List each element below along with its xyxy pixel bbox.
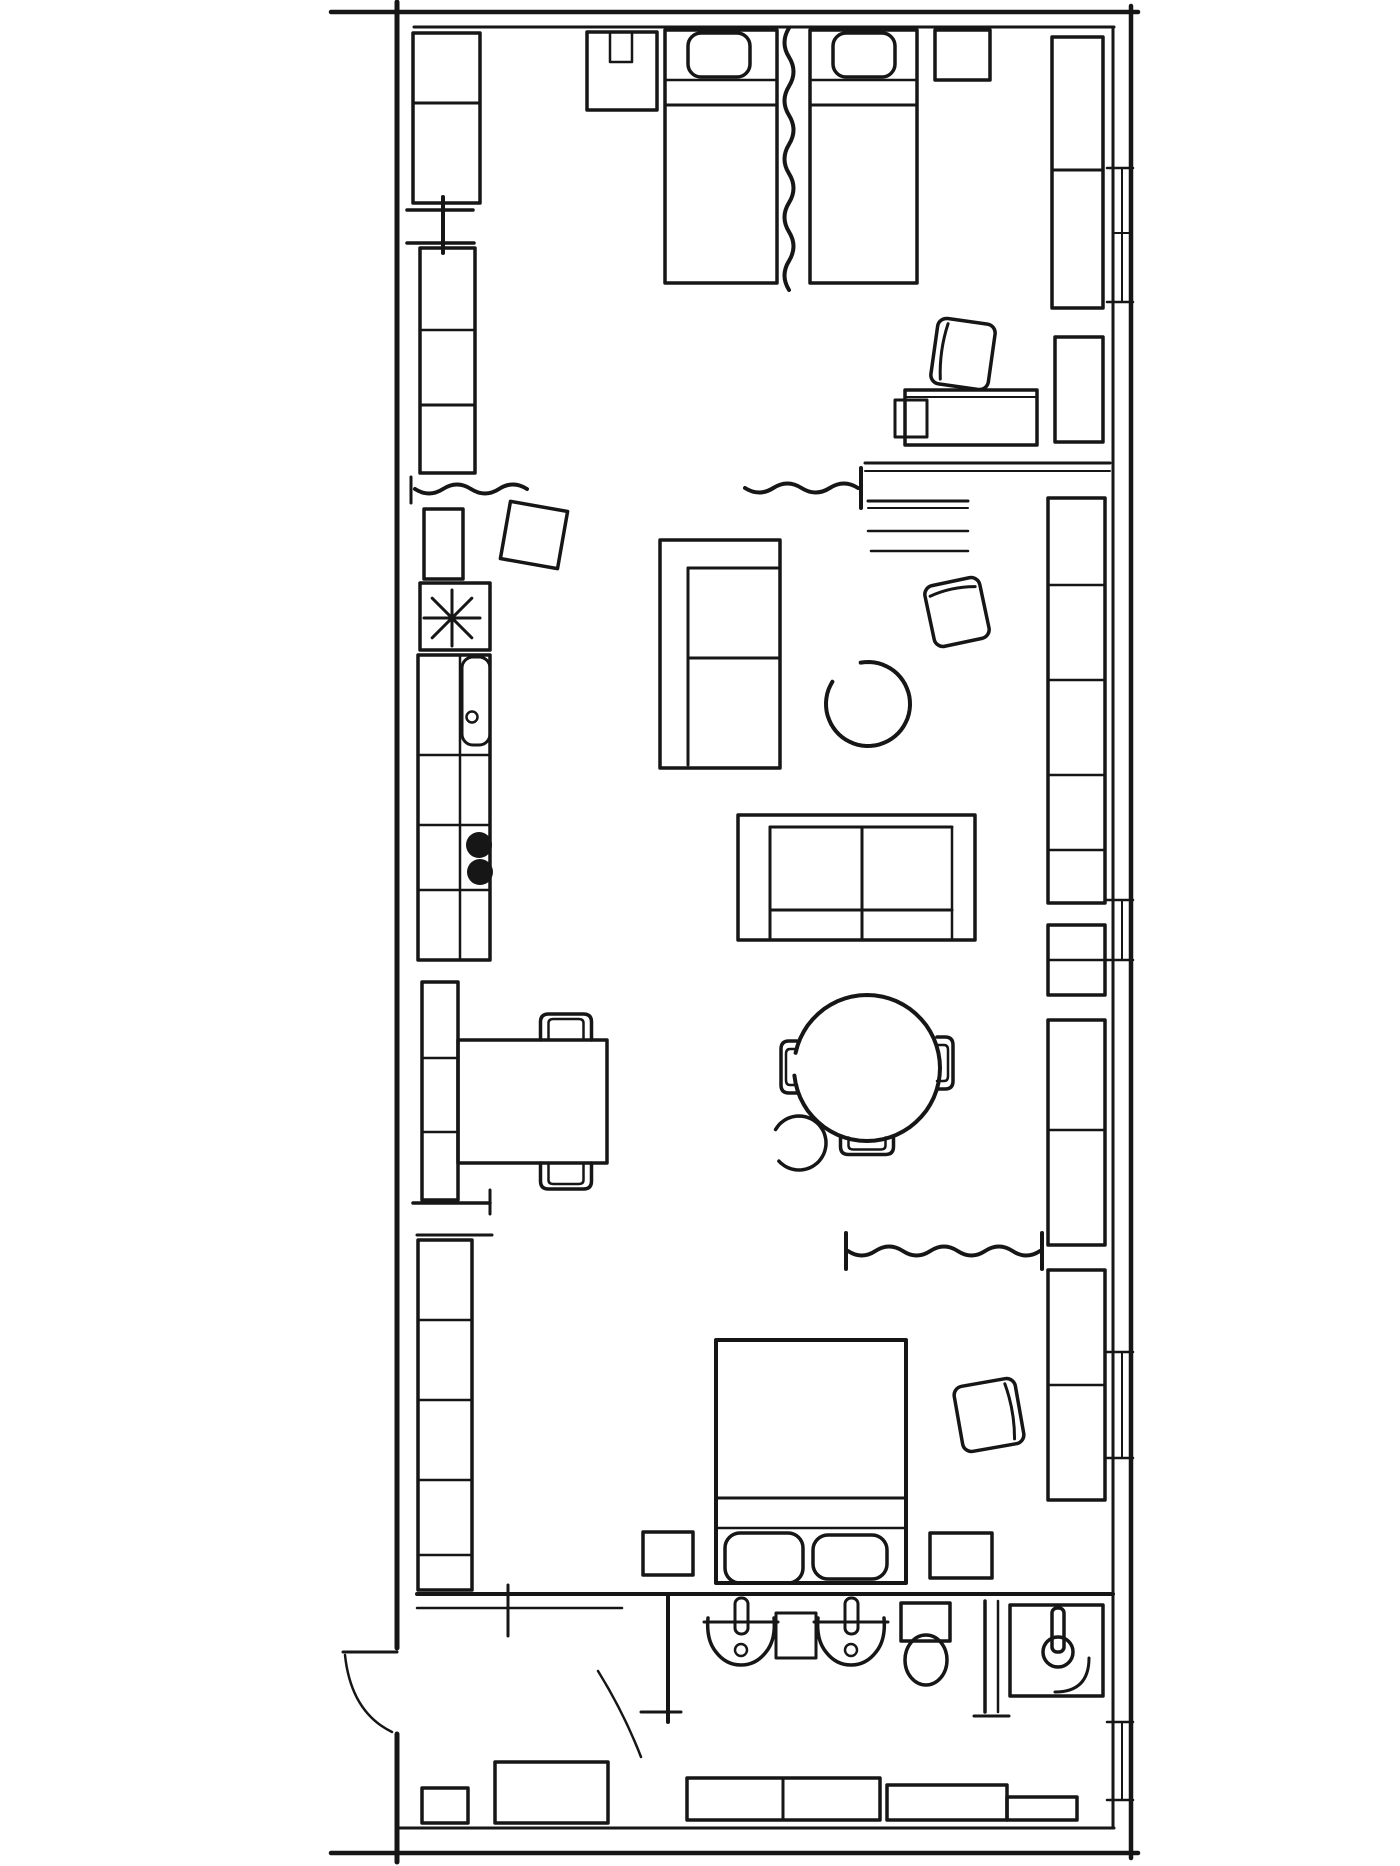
front-door-arc [345,1655,392,1732]
dining-chair-left [781,1041,797,1093]
bed-2 [810,30,917,283]
table-left [458,1040,607,1163]
sofa-1 [660,540,780,768]
table-left-chair-bottom [541,1163,592,1189]
curtain-bedroom-squiggle [848,1247,1040,1256]
sofa-2 [738,815,975,940]
hall-unit [495,1762,608,1823]
kitchen-stool [500,501,567,568]
sink-1-drain [735,1644,747,1656]
wardrobe-tr [1052,37,1103,308]
bath-shelf [776,1613,816,1658]
bed-1-pillow [688,33,750,77]
wardrobe-r-2 [1048,498,1105,903]
desk-chair-back [938,323,948,379]
hall-cabinet [422,1788,468,1823]
table-left-chair-top-inner [549,1019,584,1040]
hall-door-arc [598,1671,641,1757]
cabinet-r-1 [1055,337,1103,442]
bed-double-pillow-2 [813,1535,887,1579]
bed-2-pillow [833,33,895,77]
table-left-chair-top [541,1014,592,1040]
kitchen-faucet [467,712,478,723]
side-table [826,662,910,746]
nightstand-1 [587,32,657,110]
sink-1-faucet [735,1598,748,1634]
bed-1 [665,30,777,283]
dining-table [794,995,940,1141]
kitchen-counter [418,655,490,960]
cabinet-left-mid [422,982,458,1200]
dining-stool [776,1116,826,1170]
stove-burner-1 [466,832,492,858]
kitchen-sink [462,657,490,745]
armchair-living [923,576,991,648]
floor-plan [0,0,1400,1866]
stove-burner-2 [467,859,493,885]
curtain-beds-squiggle [785,28,794,290]
bath-cabinet-2 [887,1785,1007,1820]
shower-tray-corner [1055,1658,1089,1692]
nightstand-3 [643,1532,693,1575]
wardrobe-tl-2 [420,248,475,473]
bedroom-chair [953,1377,1026,1453]
sink-2-faucet [845,1598,858,1634]
bedroom-chair-seat [953,1377,1026,1453]
wardrobe-tl-1 [413,33,480,203]
sink-2-drain [845,1644,857,1656]
curtain-desk-squiggle [745,484,858,493]
desk-side-box [895,400,927,437]
fridge [424,509,463,579]
sink-1-bowl [708,1618,775,1665]
shower-faucet-bar [1052,1608,1064,1652]
floorplan-svg [0,0,1400,1866]
nightstand-2 [935,30,990,80]
kitchen-window-squiggle [415,485,527,494]
table-left-chair-bottom-inner [549,1163,584,1184]
wardrobe-r-3 [1048,1020,1105,1245]
nightstand-1-inner [610,32,632,62]
sink-2-bowl [818,1618,885,1665]
bed-double-pillow-1 [725,1533,803,1583]
wardrobe-bl [418,1240,472,1590]
nightstand-4 [930,1533,992,1578]
bath-cabinet-3 [1007,1797,1077,1820]
desk-chair [930,317,997,390]
bed-double [716,1340,906,1583]
kitchen-lamp-star [424,590,480,646]
